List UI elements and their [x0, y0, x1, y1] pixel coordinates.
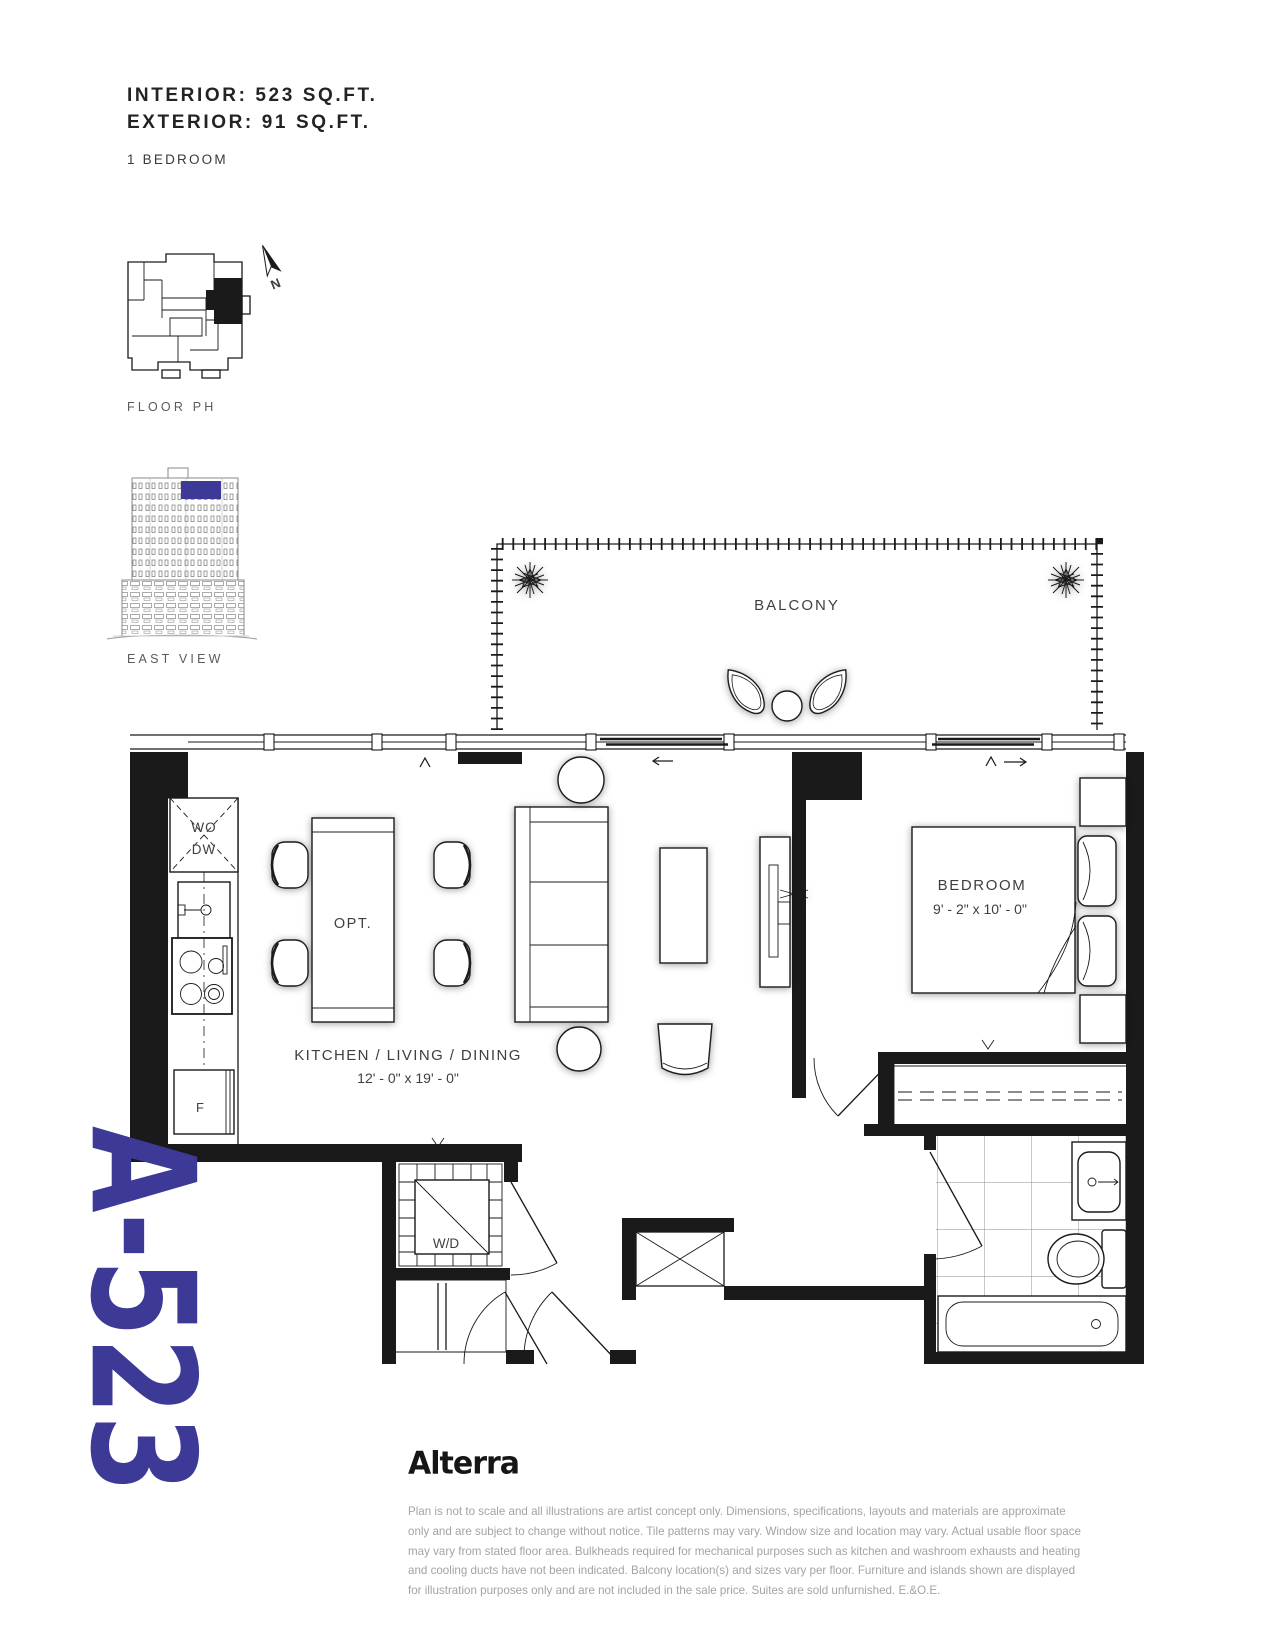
balcony-label: BALCONY — [754, 597, 840, 614]
bathroom — [930, 1136, 1126, 1352]
washer-dryer-label: W/D — [433, 1236, 459, 1251]
bedroom: BEDROOM 9' - 2" x 10' - 0" — [814, 778, 1126, 1124]
header: INTERIOR: 523 SQ.FT. EXTERIOR: 91 SQ.FT.… — [127, 82, 377, 167]
pillow — [1078, 916, 1116, 986]
fridge: F — [174, 1070, 234, 1134]
exterior-area: EXTERIOR: 91 SQ.FT. — [127, 109, 377, 136]
floor-label: FLOOR PH — [127, 400, 217, 414]
kitchen-living-label: KITCHEN / LIVING / DINING — [294, 1047, 522, 1064]
wall-oven-label: WO — [191, 820, 216, 835]
floor-plan: BALCONY — [120, 530, 1150, 1375]
armchair — [658, 1024, 712, 1075]
north-arrow-icon: N — [256, 243, 287, 293]
nightstand — [1080, 995, 1126, 1043]
dining-chair — [272, 842, 308, 888]
washer-dryer-door — [511, 1182, 557, 1275]
plant-icon — [512, 562, 548, 598]
key-plan-unit-highlight — [206, 278, 242, 324]
bathtub — [938, 1296, 1126, 1352]
bedroom-dims: 9' - 2" x 10' - 0" — [933, 901, 1027, 917]
dining-opt-label: OPT. — [334, 916, 372, 932]
kitchen: WO DW F — [168, 798, 238, 1144]
entry-area — [396, 1280, 614, 1364]
coffee-table — [660, 848, 707, 963]
elevation-unit-highlight — [181, 481, 221, 499]
balcony: BALCONY — [497, 544, 1097, 730]
dining-chair — [272, 940, 308, 986]
nightstand — [1080, 778, 1126, 826]
pillow — [1078, 836, 1116, 906]
bedroom-label: BEDROOM — [938, 877, 1027, 894]
side-table — [558, 757, 604, 803]
disclaimer-line: may vary from stated floor area. Bulkhea… — [408, 1542, 1108, 1562]
window-wall — [130, 734, 1126, 767]
bedroom-type: 1 BEDROOM — [127, 152, 377, 167]
coat-closet-door — [464, 1292, 547, 1364]
mechanical-shaft — [636, 1232, 724, 1286]
sofa — [515, 807, 608, 1022]
side-table — [557, 1027, 601, 1071]
bathroom-vanity-sink — [1072, 1142, 1126, 1220]
balcony-chairs — [718, 662, 856, 721]
disclaimer-line: Plan is not to scale and all illustratio… — [408, 1502, 1108, 1522]
balcony-table — [772, 691, 802, 721]
floorplan-page: INTERIOR: 523 SQ.FT. EXTERIOR: 91 SQ.FT.… — [0, 0, 1275, 1650]
interior-area: INTERIOR: 523 SQ.FT. — [127, 82, 377, 109]
toilet — [1048, 1230, 1126, 1288]
dining-chair — [434, 940, 470, 986]
brand-logo: Alterra — [408, 1445, 519, 1482]
disclaimer-line: for illustration purposes only and are n… — [408, 1581, 1108, 1601]
disclaimer-line: and cooling ducts have not been indicate… — [408, 1561, 1108, 1581]
wall-oven-dishwasher: WO DW — [170, 798, 238, 872]
kitchen-living-dims: 12' - 0" x 19' - 0" — [357, 1070, 459, 1086]
disclaimer-line: only and are subject to change without n… — [408, 1522, 1108, 1542]
dining-chair — [434, 842, 470, 888]
dining-table: OPT. — [312, 818, 394, 1022]
dishwasher-label: DW — [192, 842, 217, 857]
cooktop — [172, 938, 232, 1014]
key-plan: N — [118, 240, 298, 405]
plant-icon — [1048, 562, 1084, 598]
north-label: N — [268, 275, 282, 292]
dining-set: OPT. — [272, 818, 470, 1022]
unit-number: A-523 — [70, 1126, 213, 1493]
fridge-label: F — [196, 1100, 204, 1115]
disclaimer: Plan is not to scale and all illustratio… — [408, 1502, 1108, 1601]
